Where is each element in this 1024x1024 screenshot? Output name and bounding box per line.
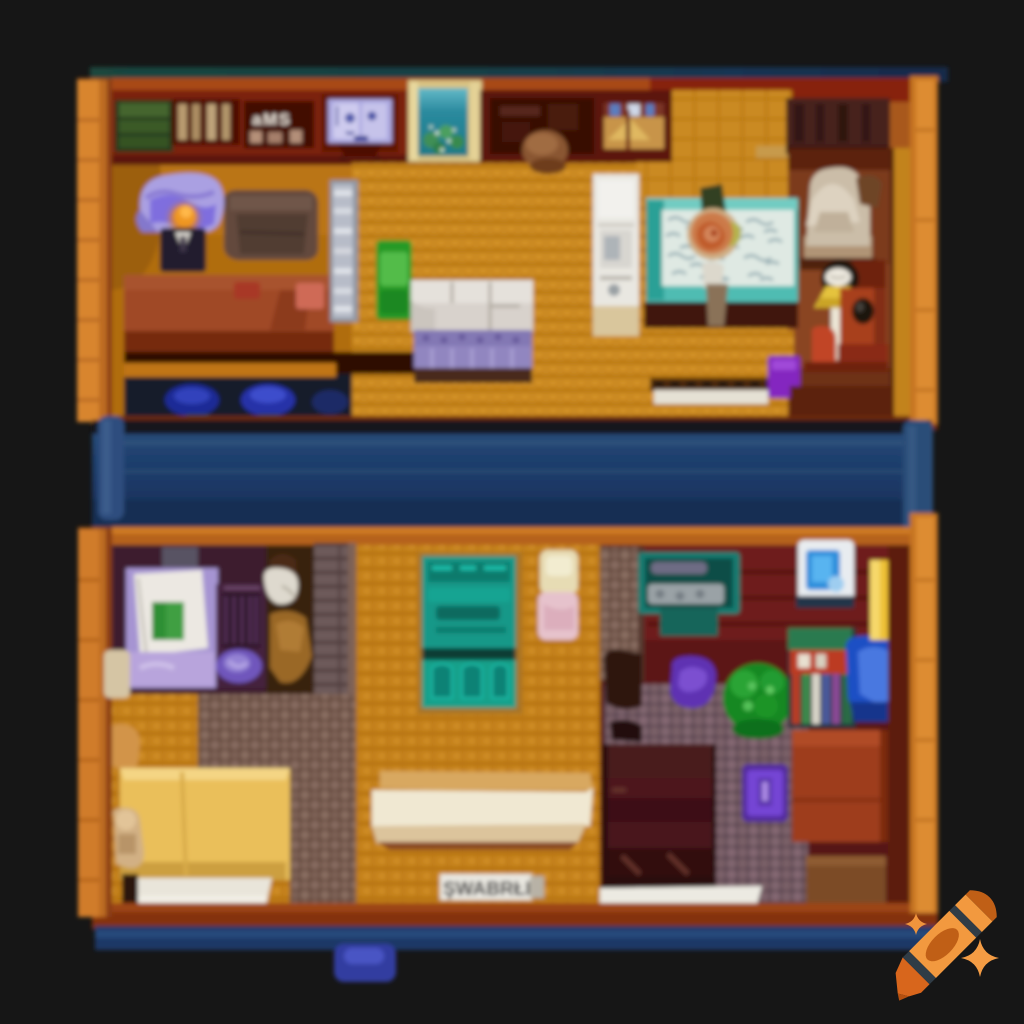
svg-text:ŞWABRŁI: ŞWABRŁI bbox=[443, 879, 531, 900]
svg-text:aMS: aMS bbox=[252, 110, 291, 129]
